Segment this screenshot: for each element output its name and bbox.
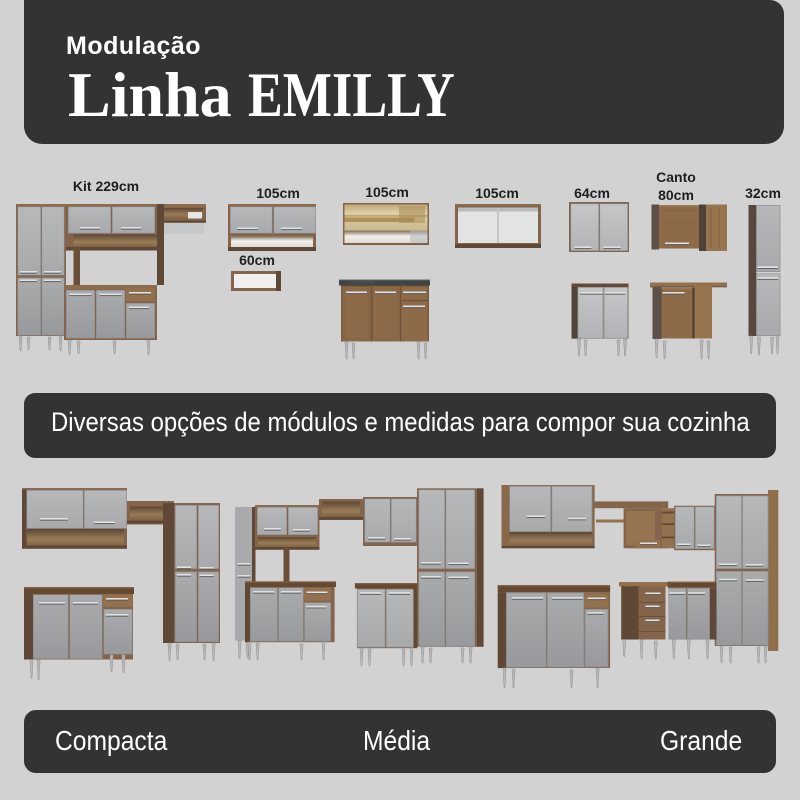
svg-text:64cm: 64cm xyxy=(574,185,610,201)
svg-text:80cm: 80cm xyxy=(658,187,694,203)
svg-text:105cm: 105cm xyxy=(365,184,409,200)
svg-text:Canto: Canto xyxy=(656,169,696,185)
svg-text:105cm: 105cm xyxy=(475,185,519,201)
svg-text:Kit 229cm: Kit 229cm xyxy=(73,178,139,194)
svg-text:60cm: 60cm xyxy=(239,252,275,268)
svg-text:32cm: 32cm xyxy=(745,185,781,201)
svg-text:105cm: 105cm xyxy=(256,185,300,201)
